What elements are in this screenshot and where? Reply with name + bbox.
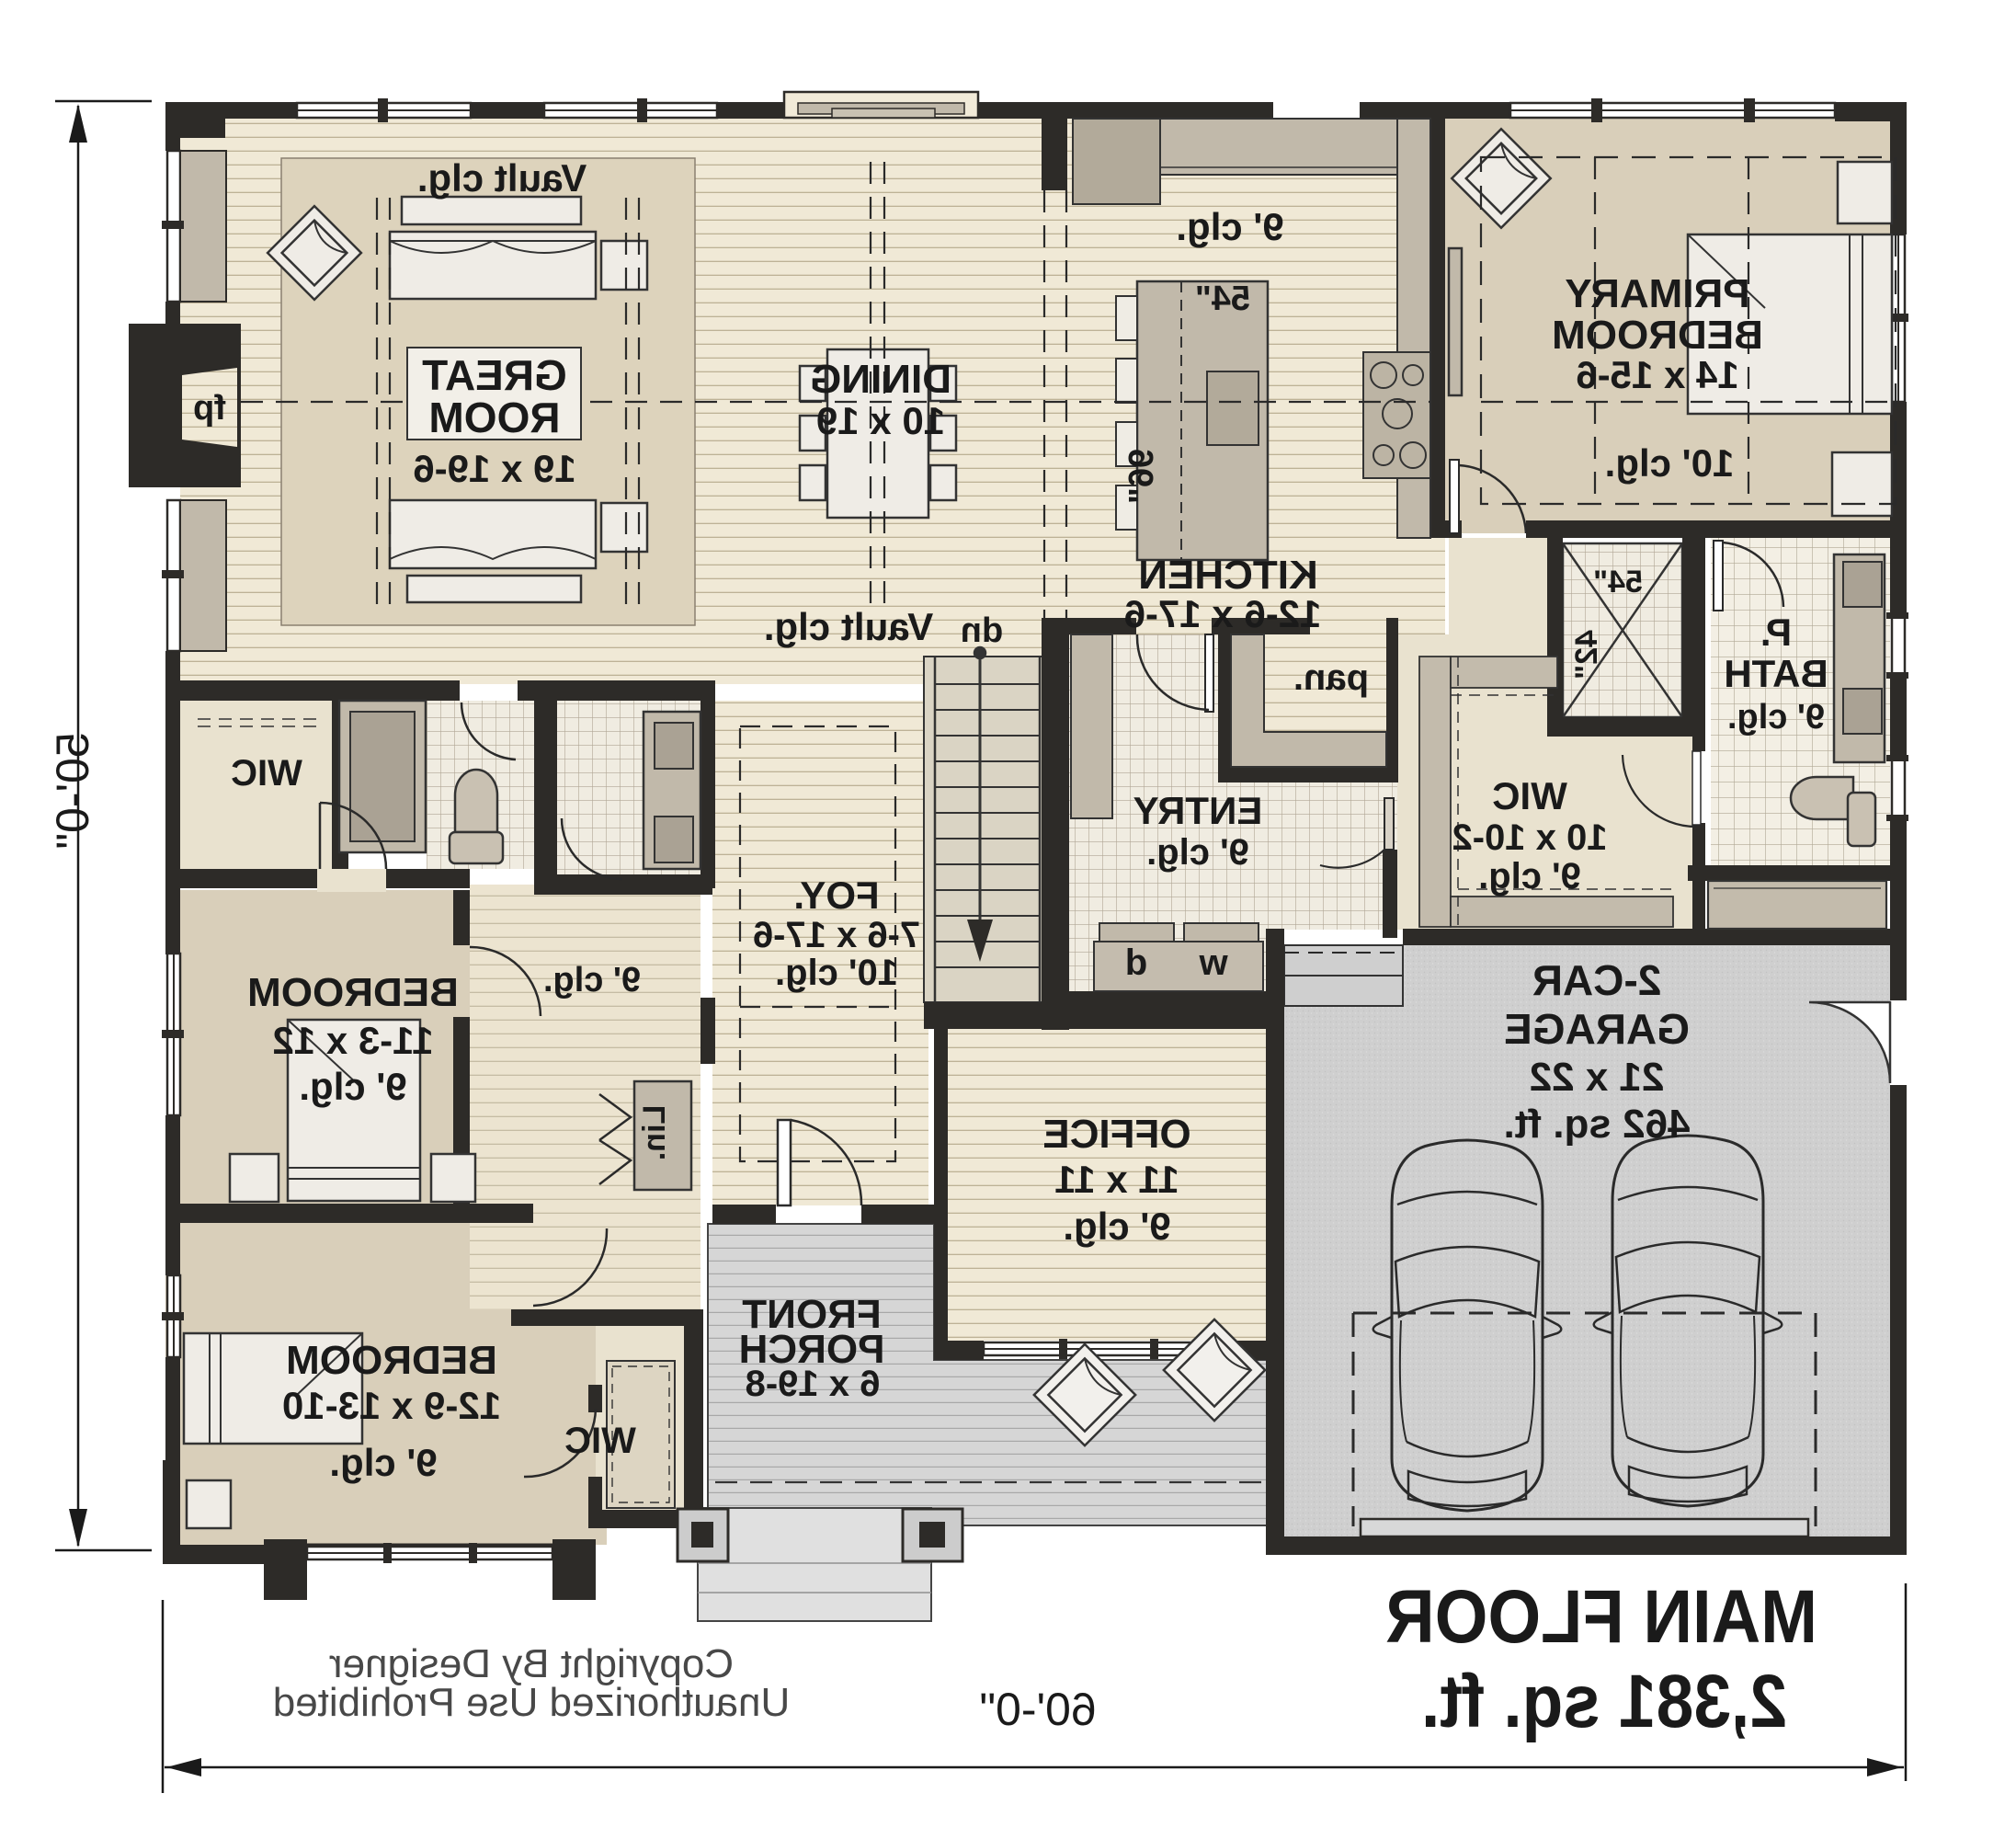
svg-text:WIC: WIC [1492, 774, 1567, 817]
svg-text:fp: fp [193, 389, 226, 428]
svg-text:MAIN FLOOR: MAIN FLOOR [1385, 1575, 1817, 1659]
svg-text:462 sq. ft.: 462 sq. ft. [1504, 1102, 1691, 1147]
svg-text:96": 96" [1122, 449, 1161, 504]
svg-text:dn: dn [961, 611, 1003, 650]
svg-text:21 x 22: 21 x 22 [1530, 1055, 1665, 1100]
svg-text:9' clg.: 9' clg. [1146, 832, 1249, 873]
svg-text:12-6 x 17-6: 12-6 x 17-6 [1124, 592, 1322, 635]
svg-text:12-9 x 13-10: 12-9 x 13-10 [282, 1384, 501, 1427]
svg-text:BEDROOM: BEDROOM [1552, 313, 1763, 358]
svg-text:KITCHEN: KITCHEN [1138, 553, 1318, 598]
svg-text:DINING: DINING [810, 357, 951, 402]
svg-text:9' clg.: 9' clg. [1176, 205, 1283, 248]
svg-text:w: w [1199, 942, 1229, 983]
svg-text:42": 42" [1569, 630, 1604, 680]
svg-text:60'-0": 60'-0" [979, 1684, 1096, 1735]
svg-text:OFFICE: OFFICE [1042, 1112, 1190, 1157]
svg-text:9' clg.: 9' clg. [1727, 698, 1825, 737]
svg-text:14 x 15-6: 14 x 15-6 [1576, 353, 1738, 396]
svg-text:ENTRY: ENTRY [1133, 789, 1263, 832]
svg-text:50'-0": 50'-0" [47, 732, 98, 849]
svg-text:9' clg.: 9' clg. [1478, 856, 1581, 897]
svg-text:Vault clg.: Vault clg. [417, 156, 587, 200]
svg-text:9' clg.: 9' clg. [1063, 1205, 1170, 1248]
svg-text:9' clg.: 9' clg. [329, 1441, 437, 1484]
svg-text:10' clg.: 10' clg. [1605, 441, 1735, 485]
svg-text:P.: P. [1760, 611, 1792, 654]
svg-text:pan.: pan. [1293, 657, 1369, 698]
svg-text:WIC: WIC [564, 1421, 636, 1461]
svg-text:BEDROOM: BEDROOM [247, 970, 459, 1015]
svg-text:PRIMARY: PRIMARY [1565, 271, 1749, 316]
svg-text:6 x 19-8: 6 x 19-8 [746, 1364, 881, 1404]
svg-text:10 x 10-2: 10 x 10-2 [1452, 817, 1607, 858]
svg-text:9' clg.: 9' clg. [299, 1065, 406, 1108]
svg-text:BEDROOM: BEDROOM [286, 1338, 497, 1383]
svg-text:Vault clg.: Vault clg. [764, 605, 933, 648]
svg-text:GREAT: GREAT [422, 351, 567, 399]
svg-text:10 x 19: 10 x 19 [816, 399, 945, 442]
svg-text:54": 54" [1195, 280, 1250, 318]
svg-text:19 x 19-6: 19 x 19-6 [413, 447, 575, 490]
svg-text:Lin.: Lin. [637, 1105, 672, 1160]
svg-text:11 x 11: 11 x 11 [1054, 1158, 1179, 1201]
svg-text:WIC: WIC [231, 753, 302, 794]
svg-text:9' clg.: 9' clg. [543, 961, 641, 999]
svg-text:7-6 x 17-6: 7-6 x 17-6 [753, 915, 920, 955]
svg-text:d: d [1125, 942, 1147, 983]
svg-text:54": 54" [1593, 565, 1643, 600]
svg-text:11-3 x 12: 11-3 x 12 [272, 1019, 433, 1062]
svg-text:ROOM: ROOM [428, 394, 560, 441]
svg-text:Unauthorized Use Prohibited: Unauthorized Use Prohibited [273, 1680, 791, 1725]
svg-text:FOY.: FOY. [793, 874, 879, 917]
svg-text:GARAGE: GARAGE [1504, 1005, 1690, 1053]
svg-text:BATH: BATH [1724, 652, 1828, 695]
svg-text:10' clg.: 10' clg. [775, 953, 898, 993]
svg-text:2-CAR: 2-CAR [1532, 956, 1662, 1004]
svg-text:2,381 sq. ft.: 2,381 sq. ft. [1421, 1660, 1787, 1743]
